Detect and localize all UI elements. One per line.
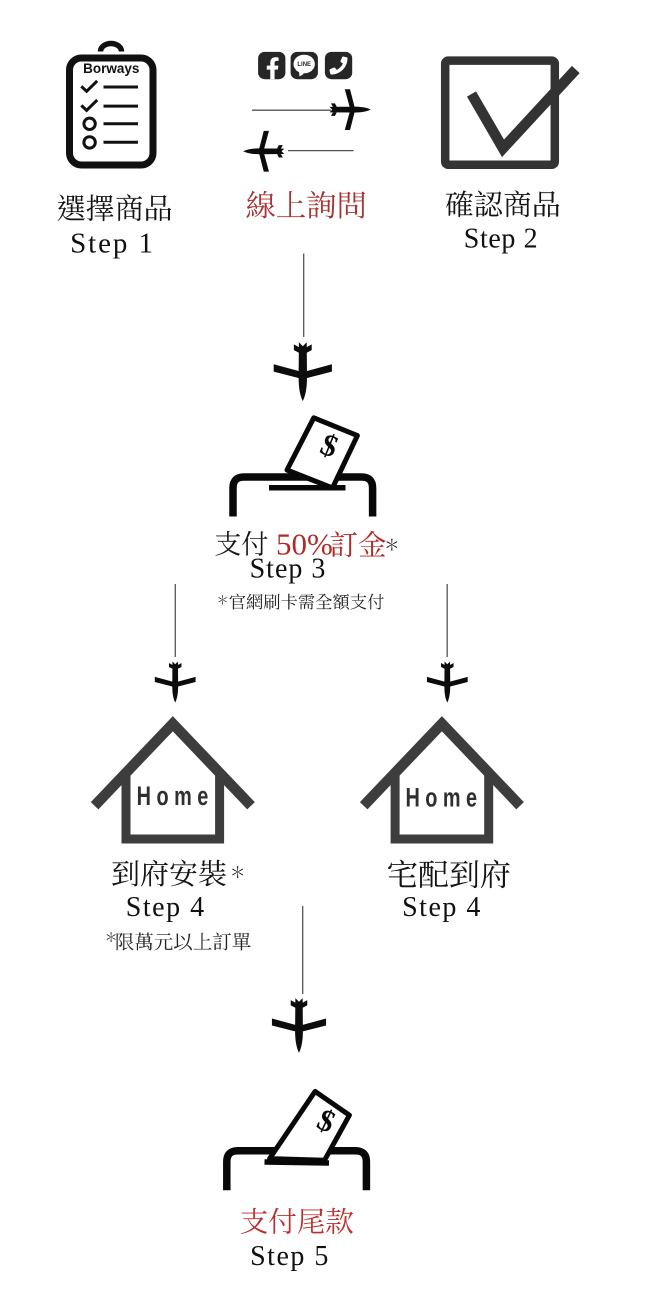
svg-text:Step 5: Step 5 <box>250 1241 330 1272</box>
svg-text:Step 4: Step 4 <box>126 892 206 923</box>
svg-text:Step 1: Step 1 <box>70 227 155 259</box>
svg-text:LINE: LINE <box>297 62 311 68</box>
svg-text:Home: Home <box>137 781 214 810</box>
svg-text:Home: Home <box>405 783 482 812</box>
svg-text:Step 3: Step 3 <box>250 554 327 585</box>
svg-text:Borways: Borways <box>83 61 139 76</box>
svg-text:Step 2: Step 2 <box>464 223 538 254</box>
svg-text:Step 4: Step 4 <box>402 892 482 923</box>
